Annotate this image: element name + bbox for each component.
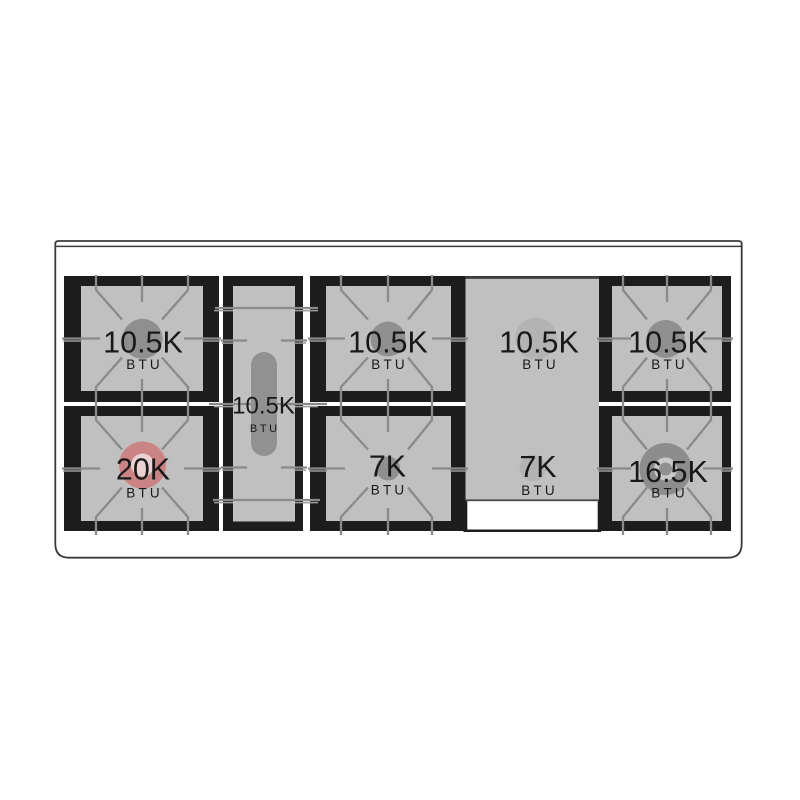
svg-text:20K: 20K [116,453,170,487]
svg-text:7K: 7K [369,450,406,484]
svg-text:BTU: BTU [651,486,688,501]
svg-text:10.5K: 10.5K [103,326,183,360]
svg-text:BTU: BTU [371,357,408,372]
svg-text:16.5K: 16.5K [628,455,708,489]
svg-text:BTU: BTU [522,357,559,372]
svg-text:BTU: BTU [371,483,408,498]
svg-text:10.5K: 10.5K [232,393,295,420]
svg-text:7K: 7K [519,450,556,484]
svg-text:10.5K: 10.5K [499,326,579,360]
svg-text:BTU: BTU [126,357,163,372]
svg-text:10.5K: 10.5K [628,326,708,360]
svg-text:BTU: BTU [126,486,163,501]
svg-text:10.5K: 10.5K [348,326,428,360]
svg-text:BTU: BTU [651,357,688,372]
svg-text:BTU: BTU [521,483,558,498]
svg-text:BTU: BTU [250,423,280,435]
